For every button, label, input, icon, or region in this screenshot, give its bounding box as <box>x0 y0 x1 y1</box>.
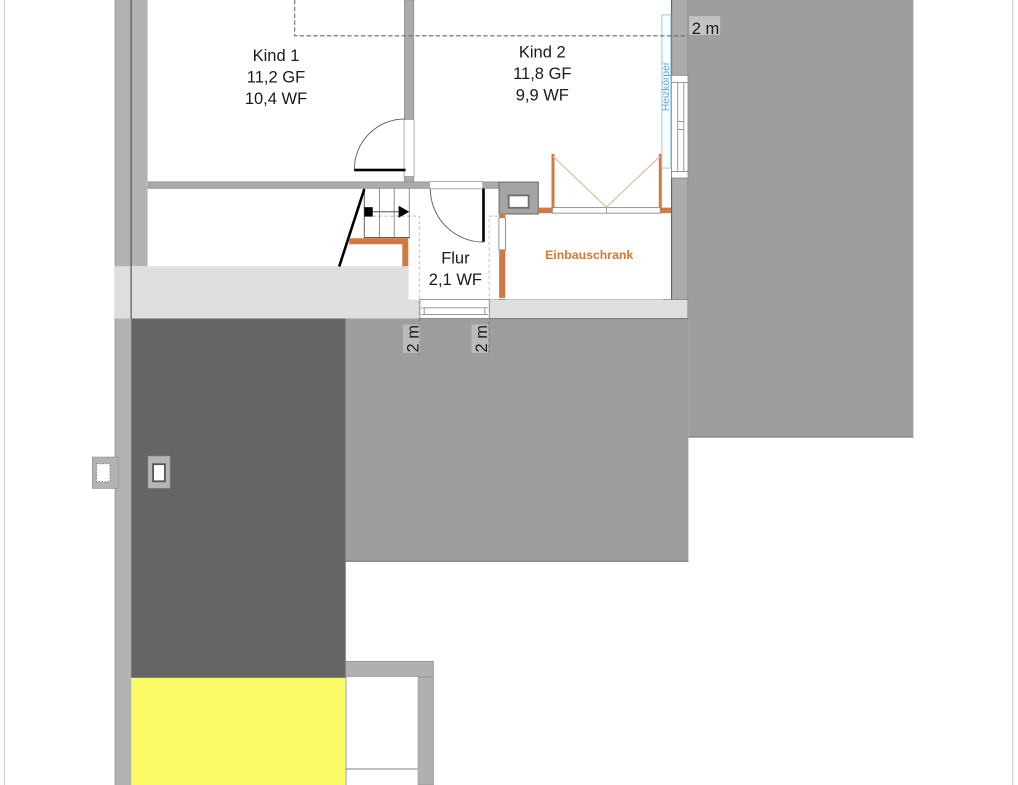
svg-text:Kind 2: Kind 2 <box>519 44 566 62</box>
svg-text:11,8 GF: 11,8 GF <box>513 65 571 83</box>
svg-text:2 m: 2 m <box>473 325 491 353</box>
svg-text:2 m: 2 m <box>405 325 423 353</box>
svg-text:Flur: Flur <box>441 250 470 268</box>
svg-text:9,9 WF: 9,9 WF <box>516 87 569 105</box>
svg-text:2,1 WF: 2,1 WF <box>429 271 482 289</box>
svg-text:Kind 1: Kind 1 <box>253 47 300 65</box>
svg-text:11,2 GF: 11,2 GF <box>247 69 305 87</box>
svg-text:2 m: 2 m <box>692 20 720 38</box>
svg-text:Heizkörper: Heizkörper <box>661 61 672 111</box>
svg-text:10,4 WF: 10,4 WF <box>245 90 307 108</box>
svg-text:Einbauschrank: Einbauschrank <box>545 248 633 262</box>
